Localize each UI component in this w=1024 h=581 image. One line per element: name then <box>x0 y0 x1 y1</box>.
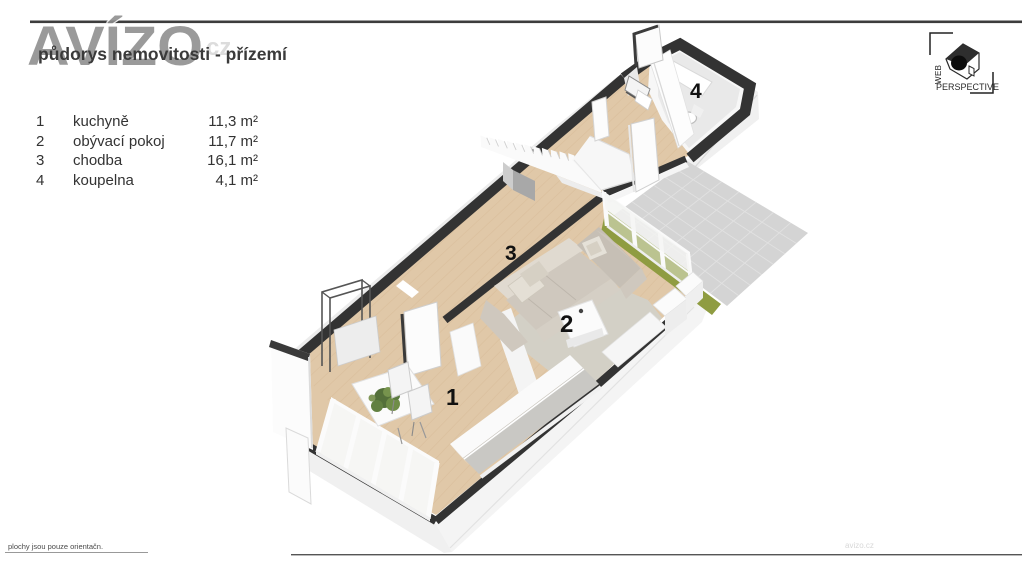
svg-text:4: 4 <box>36 172 44 189</box>
svg-text:2: 2 <box>560 311 573 338</box>
svg-text:půdorys nemovitosti - přízemí: půdorys nemovitosti - přízemí <box>38 44 288 64</box>
svg-text:2: 2 <box>36 133 44 150</box>
svg-text:koupelna: koupelna <box>73 172 135 189</box>
svg-text:11,3 m²: 11,3 m² <box>208 113 258 130</box>
svg-text:4: 4 <box>690 80 702 103</box>
svg-text:kuchyně: kuchyně <box>73 113 129 130</box>
svg-text:3: 3 <box>505 242 517 265</box>
svg-text:16,1 m²: 16,1 m² <box>207 152 258 169</box>
svg-text:11,7 m²: 11,7 m² <box>208 133 258 150</box>
svg-text:4,1 m²: 4,1 m² <box>215 172 258 189</box>
svg-text:obývací pokoj: obývací pokoj <box>73 133 165 150</box>
svg-text:chodba: chodba <box>73 152 123 169</box>
svg-text:1: 1 <box>36 113 44 130</box>
svg-text:plochy jsou pouze orientačn.: plochy jsou pouze orientačn. <box>8 542 103 551</box>
svg-text:avizo.cz: avizo.cz <box>845 541 874 550</box>
svg-text:3: 3 <box>36 152 44 169</box>
svg-text:PERSPECTIVE: PERSPECTIVE <box>936 82 999 92</box>
svg-text:1: 1 <box>446 384 459 410</box>
